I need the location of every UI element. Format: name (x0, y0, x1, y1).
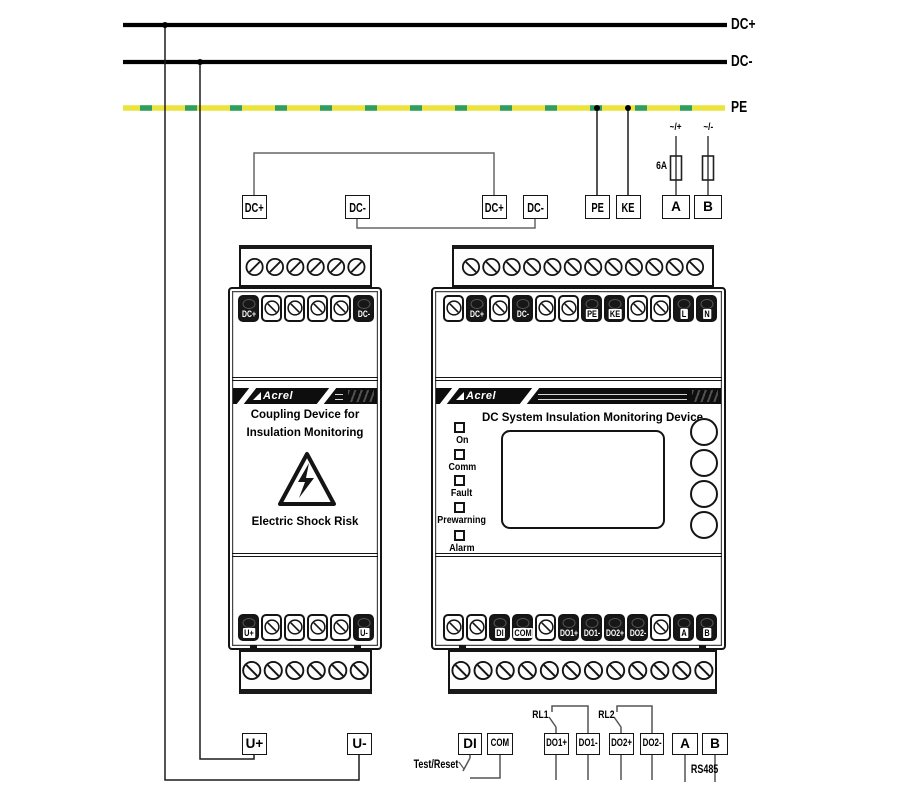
terminal-do1-minus: DO1- (581, 614, 602, 641)
terminal-dc-minus: DC- (353, 295, 374, 322)
device-title-line2: Insulation Monitoring (230, 427, 380, 439)
box-dc-minus-1: DC- (345, 195, 370, 219)
terminal-screw (466, 614, 487, 641)
do-output-wires (556, 754, 652, 780)
brand-banner: Acrel (233, 388, 377, 404)
right-device-top-screw-block (452, 245, 714, 287)
left-device-top-screw-block (239, 245, 372, 287)
fuse-plus-label: ~/+ (662, 121, 690, 133)
dc-plus-loop-wire (254, 153, 494, 195)
left-device-coupling: DC+ DC- Acrel Coupling Device for Insula… (228, 287, 382, 650)
junction-dot (625, 105, 631, 111)
divider (232, 553, 378, 557)
terminal-do2-plus: DO2+ (604, 614, 625, 641)
led-on-label: On (427, 434, 497, 446)
terminal-screw (535, 295, 556, 322)
led-comm (454, 449, 465, 460)
led-prewarning-label: Prewarning (427, 514, 497, 526)
led-prewarning (454, 502, 465, 513)
box-dc-plus-2: DC+ (482, 195, 507, 219)
rl1-contact (549, 706, 588, 733)
box-di: DI (458, 733, 482, 755)
test-reset-pointer (459, 762, 464, 769)
right-bottom-terminal-row: DI COM DO1+ DO1- DO2+ DO2- A B (443, 614, 717, 641)
device-button-3 (690, 480, 718, 508)
box-u-plus: U+ (242, 733, 267, 755)
led-on (454, 422, 465, 433)
junction-dot (594, 105, 600, 111)
terminal-screw (443, 295, 464, 322)
box-com: COM (487, 733, 513, 755)
divider (435, 377, 722, 381)
device-title: DC System Insulation Monitoring Device (469, 412, 716, 424)
left-device-bottom-screw-block (239, 650, 372, 694)
right-device-bottom-screw-block (448, 650, 717, 694)
right-top-terminal-row: DC+ DC- PE KE L N (443, 295, 717, 322)
box-rs485-a: A (672, 733, 698, 755)
terminal-do1-plus: DO1+ (558, 614, 579, 641)
junction-dot (162, 22, 168, 28)
terminal-do2-minus: DO2- (627, 614, 648, 641)
box-supply-b: B (694, 195, 722, 219)
rl1-label: RL1 (528, 709, 552, 721)
box-do1-minus: DO1- (576, 733, 600, 755)
terminal-screw (627, 295, 648, 322)
test-reset-switch (463, 754, 500, 778)
terminal-dc-plus: DC+ (466, 295, 487, 322)
terminal-rs485-a: A (673, 614, 694, 641)
acrel-logo: Acrel (456, 388, 496, 404)
terminal-screw (535, 614, 556, 641)
terminal-ke: KE (604, 295, 625, 322)
terminal-screw (261, 295, 282, 322)
terminal-neutral: N (696, 295, 717, 322)
terminal-screw (330, 295, 351, 322)
rl2-label: RL2 (594, 709, 618, 721)
terminal-pe: PE (581, 295, 602, 322)
right-device-monitor: DC+ DC- PE KE L N Acrel DC System Insula… (431, 287, 726, 650)
wiring-diagram: DC+ DC- PE ~/+ ~/- 6A DC+ DC- DC+ DC- PE… (0, 0, 915, 794)
box-do2-minus: DO2- (640, 733, 664, 755)
terminal-screw (558, 295, 579, 322)
left-bottom-terminal-row: U+ U- (238, 614, 374, 641)
junction-dot (197, 59, 203, 65)
terminal-di: DI (489, 614, 510, 641)
device-button-2 (690, 449, 718, 477)
led-fault (454, 475, 465, 486)
terminal-screw (261, 614, 282, 641)
led-comm-label: Comm (427, 461, 497, 473)
terminal-dc-minus: DC- (512, 295, 533, 322)
terminal-screw (489, 295, 510, 322)
terminal-screw (307, 614, 328, 641)
rl2-contact (614, 706, 652, 733)
rs485-label: RS485 (687, 764, 714, 776)
terminal-screw (284, 614, 305, 641)
terminal-screw (307, 295, 328, 322)
terminal-u-plus: U+ (238, 614, 259, 641)
fuse-minus-label: ~/- (694, 121, 722, 133)
terminal-screw (330, 614, 351, 641)
device-button-1 (690, 418, 718, 446)
dc-plus-bus-label: DC+ (731, 16, 762, 34)
box-ke: KE (616, 195, 641, 219)
left-top-terminal-row: DC+ DC- (238, 295, 374, 322)
led-alarm (454, 530, 465, 541)
device-button-4 (690, 511, 718, 539)
box-dc-minus-2: DC- (523, 195, 548, 219)
terminal-screw (650, 295, 671, 322)
terminal-com: COM (512, 614, 533, 641)
terminal-rs485-b: B (696, 614, 717, 641)
terminal-line: L (673, 295, 694, 322)
pe-bus-label: PE (731, 99, 752, 117)
terminal-u-minus: U- (353, 614, 374, 641)
divider (435, 553, 722, 557)
electric-shock-warning-icon (275, 449, 339, 509)
test-reset-label: Test/Reset (396, 759, 458, 771)
logo-triangle-icon (456, 392, 464, 400)
box-do2-plus: DO2+ (609, 733, 634, 755)
led-fault-label: Fault (427, 487, 497, 499)
box-rs485-b: B (702, 733, 728, 755)
terminal-screw (443, 614, 464, 641)
divider (232, 377, 378, 381)
box-pe: PE (585, 195, 610, 219)
box-supply-a: A (662, 195, 690, 219)
terminal-screw (284, 295, 305, 322)
logo-triangle-icon (253, 392, 261, 400)
device-title-line1: Coupling Device for (230, 409, 380, 421)
box-do1-plus: DO1+ (544, 733, 569, 755)
acrel-logo: Acrel (253, 388, 293, 404)
dc-minus-bus-label: DC- (731, 53, 759, 71)
terminal-dc-plus: DC+ (238, 295, 259, 322)
lcd-screen (501, 430, 665, 529)
brand-banner: Acrel (436, 388, 721, 404)
box-dc-plus-1: DC+ (242, 195, 267, 219)
warning-text: Electric Shock Risk (230, 516, 380, 528)
box-u-minus: U- (347, 733, 372, 755)
terminal-screw (650, 614, 671, 641)
dc-minus-loop-wire (357, 219, 535, 228)
fuse-rating-label: 6A (642, 160, 667, 172)
